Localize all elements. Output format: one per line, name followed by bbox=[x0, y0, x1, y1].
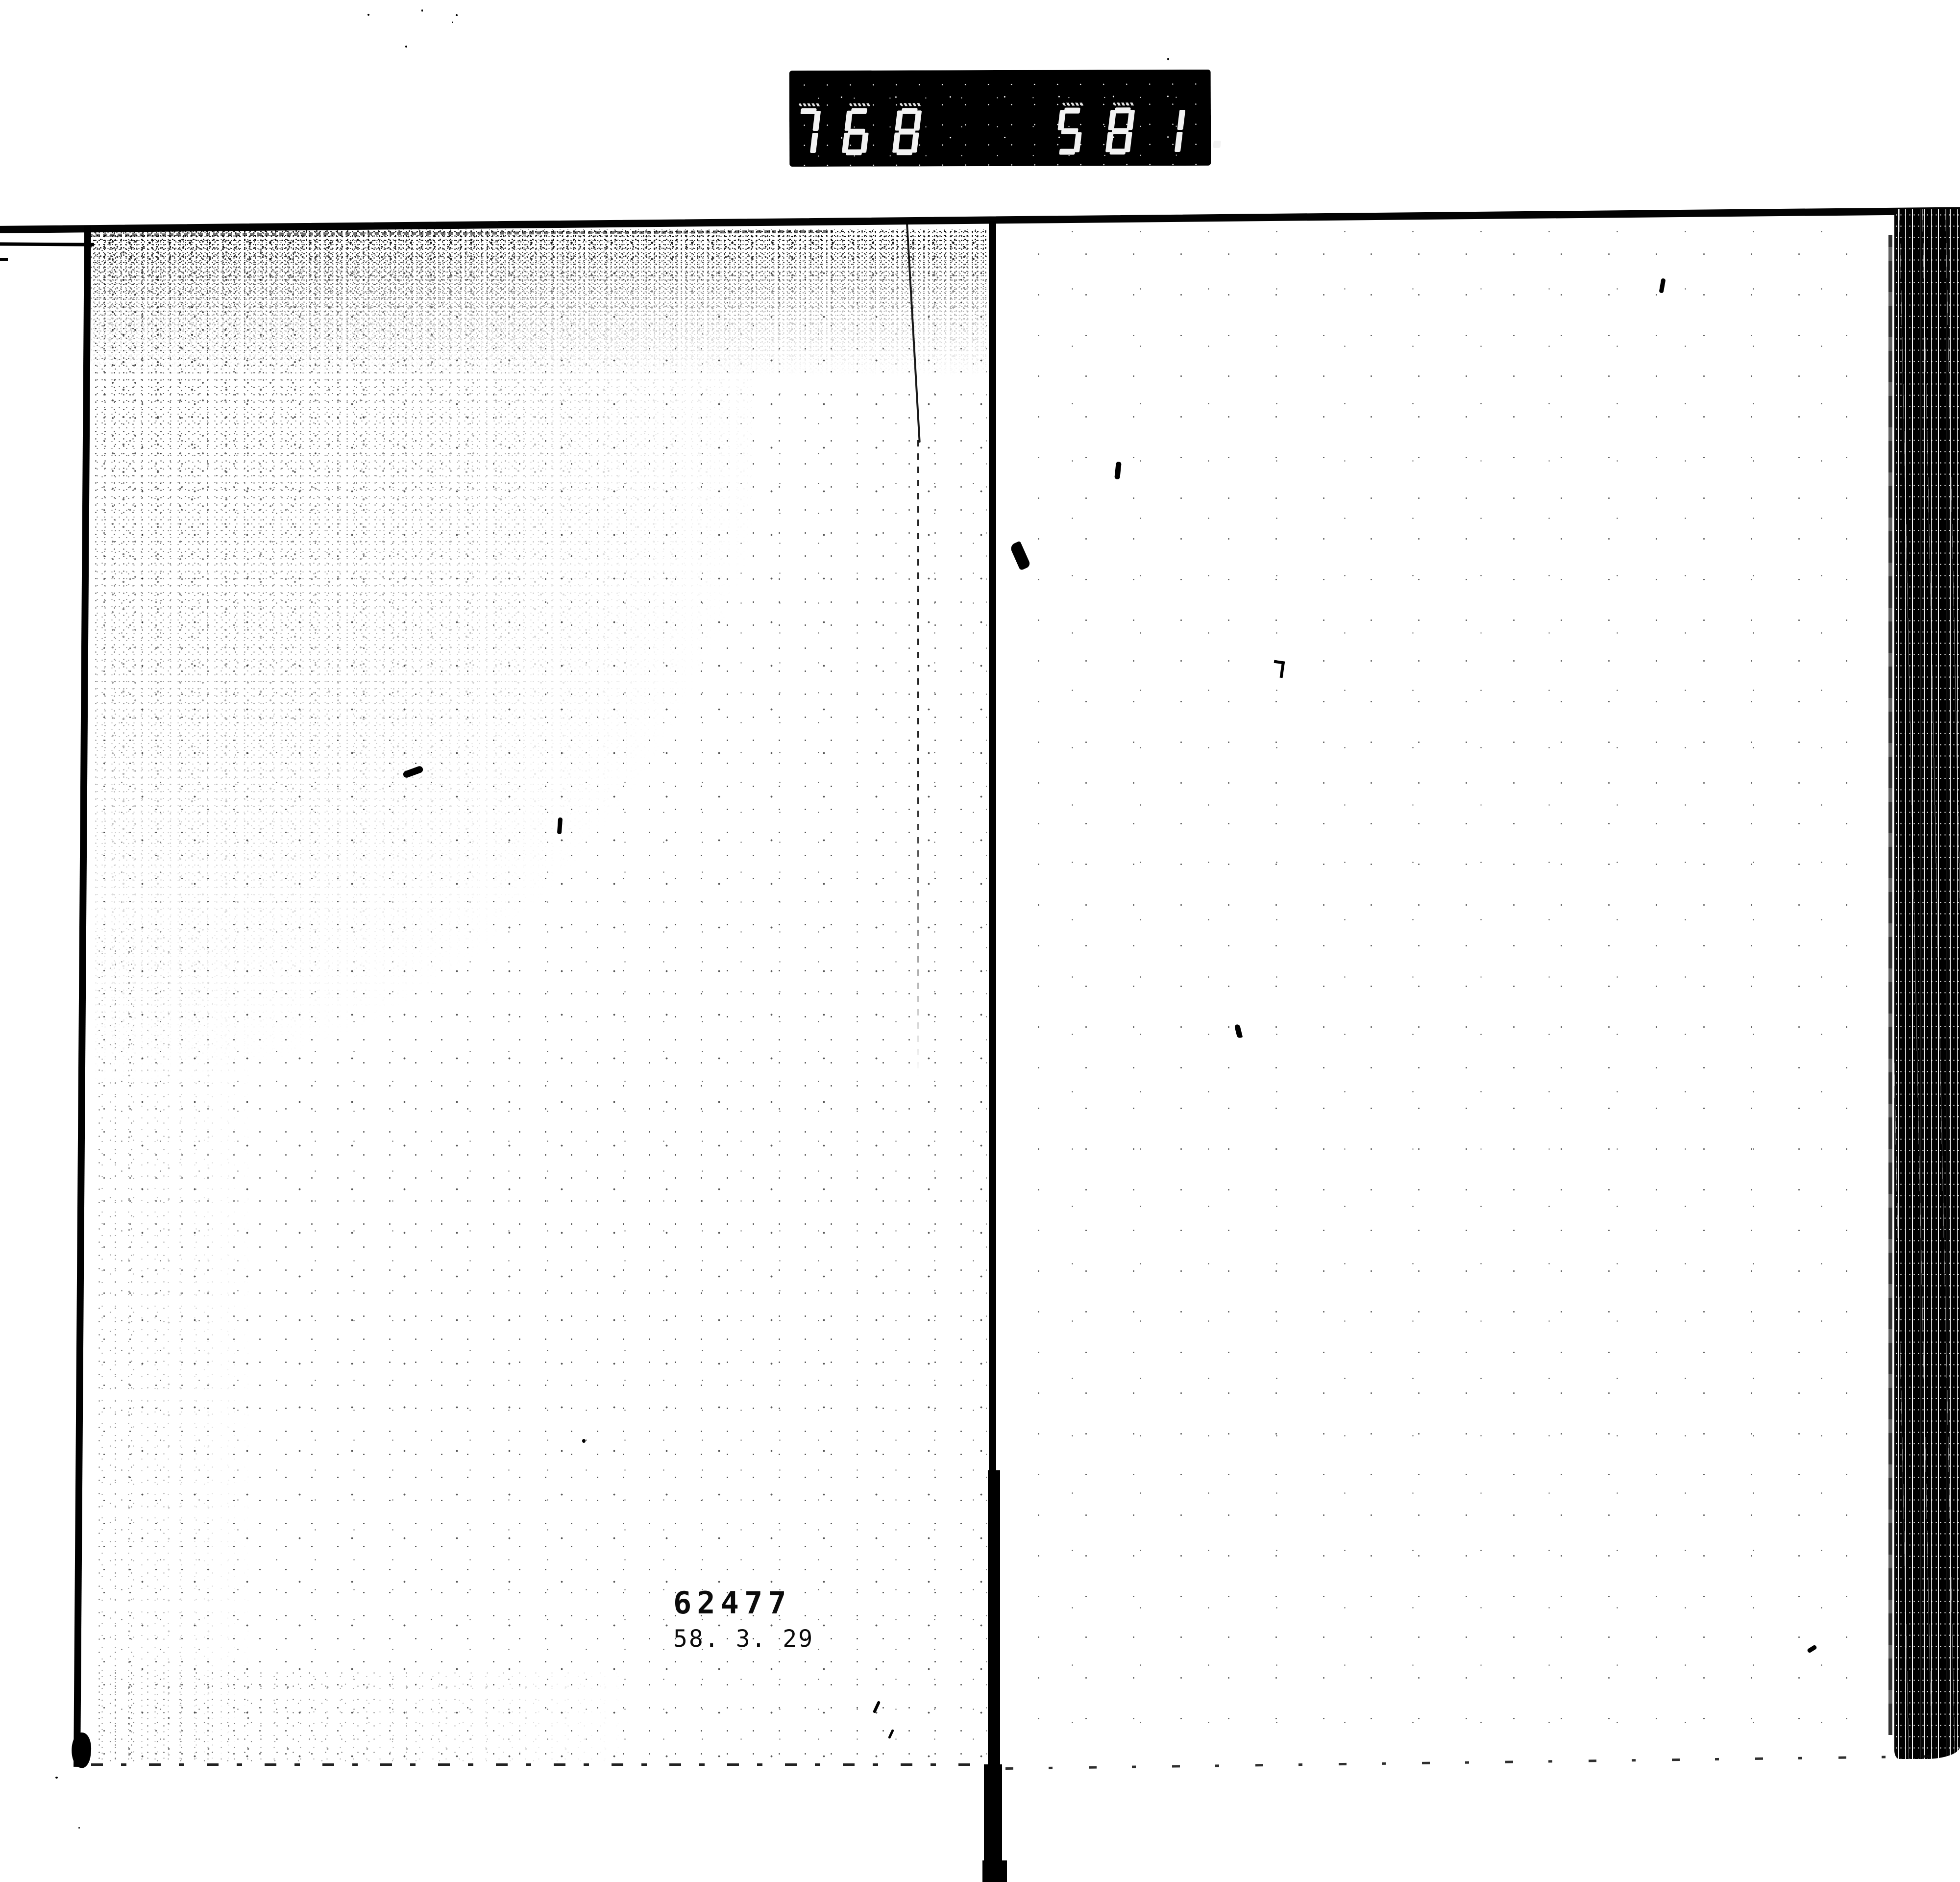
scan-noise bbox=[91, 245, 987, 1759]
dust-speck bbox=[421, 9, 423, 12]
scanned-book-spread: 62477 58. 3. 29 bbox=[0, 0, 1960, 1882]
dust-speck bbox=[456, 14, 458, 16]
frame-counter-display bbox=[789, 70, 1211, 167]
gutter-line bbox=[982, 1860, 1007, 1882]
stamp-accession-number: 62477 bbox=[673, 1588, 814, 1618]
stamp-date: 58. 3. 29 bbox=[673, 1627, 814, 1651]
gutter-line bbox=[989, 221, 996, 1470]
page-crease-line bbox=[917, 440, 919, 1077]
ink-speck bbox=[1272, 660, 1285, 678]
left-page-bottom-edge bbox=[91, 1763, 988, 1766]
fore-edge-page-stack bbox=[1894, 209, 1960, 1759]
dust-speck bbox=[367, 14, 369, 16]
dust-speck bbox=[452, 22, 453, 23]
ink-speck bbox=[0, 258, 8, 261]
ink-speck bbox=[582, 1439, 586, 1443]
left-page-edge-line bbox=[73, 225, 91, 1767]
accession-stamp: 62477 58. 3. 29 bbox=[673, 1588, 814, 1651]
scan-noise bbox=[91, 1666, 630, 1764]
gutter-line bbox=[988, 1470, 1000, 1764]
gutter-line bbox=[984, 1764, 1002, 1860]
right-page-bottom-edge bbox=[1005, 1755, 1941, 1770]
dust-speck bbox=[1167, 58, 1169, 60]
counter-right-digits bbox=[1057, 107, 1221, 155]
dust-speck bbox=[405, 46, 407, 48]
page-stack-stray-line bbox=[1888, 235, 1892, 1735]
counter-left-digits bbox=[794, 108, 919, 155]
scan-noise bbox=[1009, 230, 1886, 1755]
dust-speck bbox=[55, 1777, 58, 1779]
cover-edge-line bbox=[0, 242, 94, 246]
dust-speck bbox=[78, 1827, 80, 1829]
